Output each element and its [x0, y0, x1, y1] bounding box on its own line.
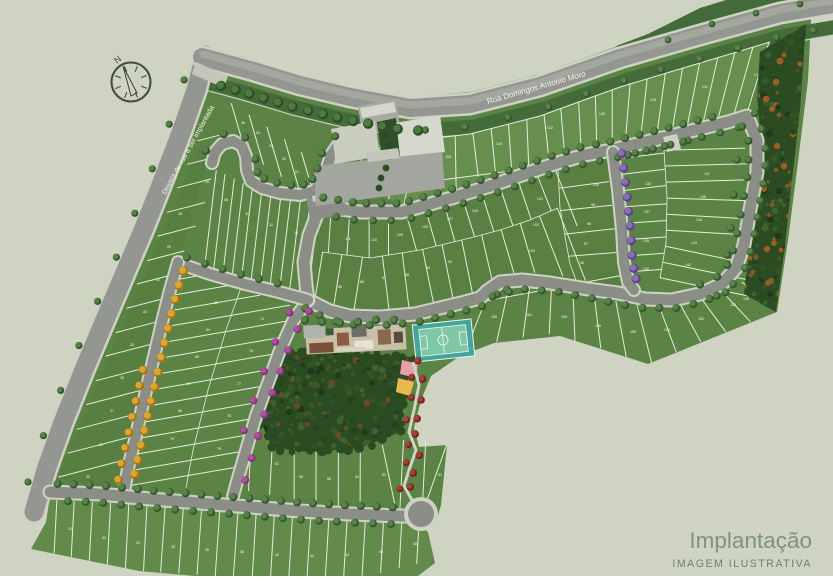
svg-text:25: 25 — [120, 376, 124, 380]
svg-text:32: 32 — [102, 536, 106, 540]
svg-text:56: 56 — [327, 477, 331, 481]
svg-text:61: 61 — [275, 462, 279, 466]
svg-text:105: 105 — [472, 209, 478, 213]
svg-text:68: 68 — [178, 409, 182, 413]
svg-text:122: 122 — [547, 126, 553, 130]
svg-text:89: 89 — [426, 266, 430, 270]
svg-text:20: 20 — [167, 245, 171, 249]
svg-text:144: 144 — [696, 218, 702, 222]
svg-text:33: 33 — [136, 541, 140, 545]
svg-text:142: 142 — [685, 263, 691, 267]
svg-text:40: 40 — [275, 553, 279, 557]
svg-text:150: 150 — [730, 303, 736, 307]
svg-text:12: 12 — [269, 223, 273, 227]
svg-text:100: 100 — [593, 183, 599, 187]
svg-text:140: 140 — [643, 267, 649, 271]
svg-text:48: 48 — [413, 542, 417, 546]
svg-text:27: 27 — [110, 409, 114, 413]
svg-text:Implantação: Implantação — [689, 528, 812, 553]
svg-text:110: 110 — [371, 238, 377, 242]
svg-text:65: 65 — [195, 355, 199, 359]
svg-text:51: 51 — [438, 473, 442, 477]
svg-text:152: 152 — [698, 317, 704, 321]
svg-text:44: 44 — [345, 553, 349, 557]
svg-text:85: 85 — [338, 285, 342, 289]
svg-text:128: 128 — [650, 98, 656, 102]
svg-text:155: 155 — [630, 330, 636, 334]
svg-text:21: 21 — [156, 278, 160, 282]
svg-text:62: 62 — [214, 301, 218, 305]
svg-text:04: 04 — [256, 131, 260, 135]
svg-text:05: 05 — [241, 121, 245, 125]
svg-text:70: 70 — [170, 437, 174, 441]
svg-text:143: 143 — [691, 241, 697, 245]
svg-text:22: 22 — [143, 310, 147, 314]
svg-text:97: 97 — [584, 242, 588, 246]
svg-text:147: 147 — [704, 172, 710, 176]
svg-text:36: 36 — [205, 548, 209, 552]
svg-text:139: 139 — [643, 239, 649, 243]
svg-text:01: 01 — [295, 170, 299, 174]
svg-text:42: 42 — [310, 554, 314, 558]
svg-text:103: 103 — [529, 249, 535, 253]
svg-text:88: 88 — [405, 273, 409, 277]
svg-text:96: 96 — [580, 261, 584, 265]
svg-text:54: 54 — [355, 475, 359, 479]
svg-text:31: 31 — [68, 527, 72, 531]
svg-text:161: 161 — [526, 313, 532, 317]
svg-text:15: 15 — [294, 231, 298, 235]
svg-text:98: 98 — [587, 222, 591, 226]
svg-text:53: 53 — [382, 473, 386, 477]
svg-text:79: 79 — [217, 447, 221, 451]
svg-text:08: 08 — [224, 198, 228, 202]
svg-text:107: 107 — [447, 217, 453, 221]
svg-text:137: 137 — [644, 210, 650, 214]
svg-text:125: 125 — [599, 112, 605, 116]
svg-text:18: 18 — [178, 212, 182, 216]
svg-text:67: 67 — [187, 382, 191, 386]
svg-text:154: 154 — [664, 328, 670, 332]
svg-text:38: 38 — [240, 550, 244, 554]
svg-text:64: 64 — [206, 328, 210, 332]
svg-text:116: 116 — [445, 155, 451, 159]
svg-text:10: 10 — [245, 212, 249, 216]
svg-text:35: 35 — [171, 545, 175, 549]
svg-text:109: 109 — [397, 233, 403, 237]
svg-text:146: 146 — [700, 195, 706, 199]
svg-text:149: 149 — [743, 297, 749, 301]
svg-text:78: 78 — [227, 414, 231, 418]
svg-text:160: 160 — [491, 315, 497, 319]
svg-text:99: 99 — [591, 203, 595, 207]
svg-text:158: 158 — [561, 315, 567, 319]
svg-text:02: 02 — [282, 157, 286, 161]
svg-text:86: 86 — [360, 280, 364, 284]
svg-text:06: 06 — [205, 180, 209, 184]
svg-text:156: 156 — [595, 324, 601, 328]
svg-text:23: 23 — [130, 343, 134, 347]
svg-text:111: 111 — [345, 237, 351, 241]
svg-text:101: 101 — [537, 197, 543, 201]
svg-text:30: 30 — [86, 475, 90, 479]
svg-text:58: 58 — [299, 475, 303, 479]
svg-text:46: 46 — [379, 550, 383, 554]
svg-text:102: 102 — [533, 223, 539, 227]
svg-text:75: 75 — [249, 349, 253, 353]
svg-text:135: 135 — [645, 182, 651, 186]
svg-text:108: 108 — [422, 225, 428, 229]
svg-text:74: 74 — [260, 317, 264, 321]
svg-text:03: 03 — [269, 144, 273, 148]
svg-text:77: 77 — [237, 382, 241, 386]
svg-text:90: 90 — [448, 260, 452, 264]
svg-text:87: 87 — [382, 276, 386, 280]
svg-text:IMAGEM ILUSTRATIVA: IMAGEM ILUSTRATIVA — [672, 558, 812, 570]
svg-text:29: 29 — [99, 443, 103, 447]
svg-text:131: 131 — [702, 85, 708, 89]
svg-text:119: 119 — [496, 142, 502, 146]
